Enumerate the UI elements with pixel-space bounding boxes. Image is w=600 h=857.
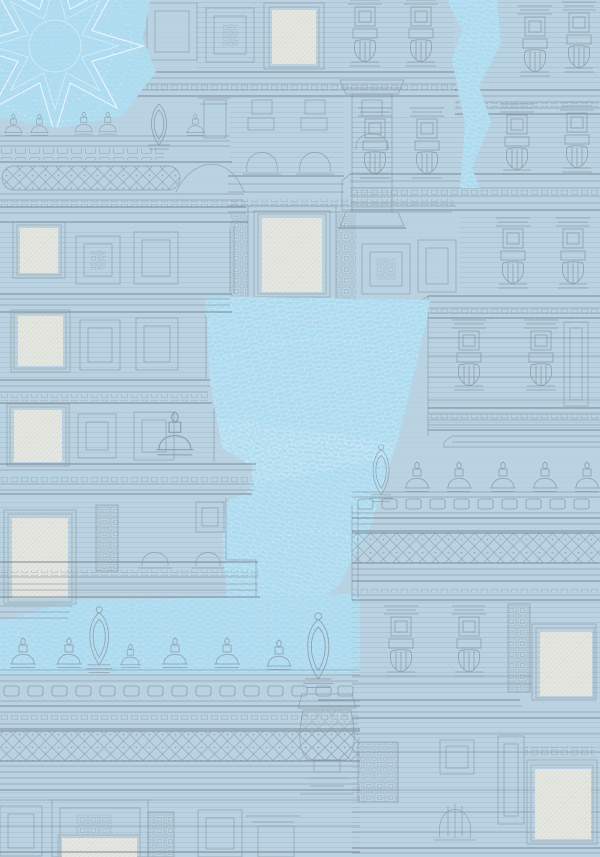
temple-pattern-canvas — [0, 0, 600, 857]
artwork-temple-pattern — [0, 0, 600, 857]
line-texture-overlay — [0, 0, 600, 857]
